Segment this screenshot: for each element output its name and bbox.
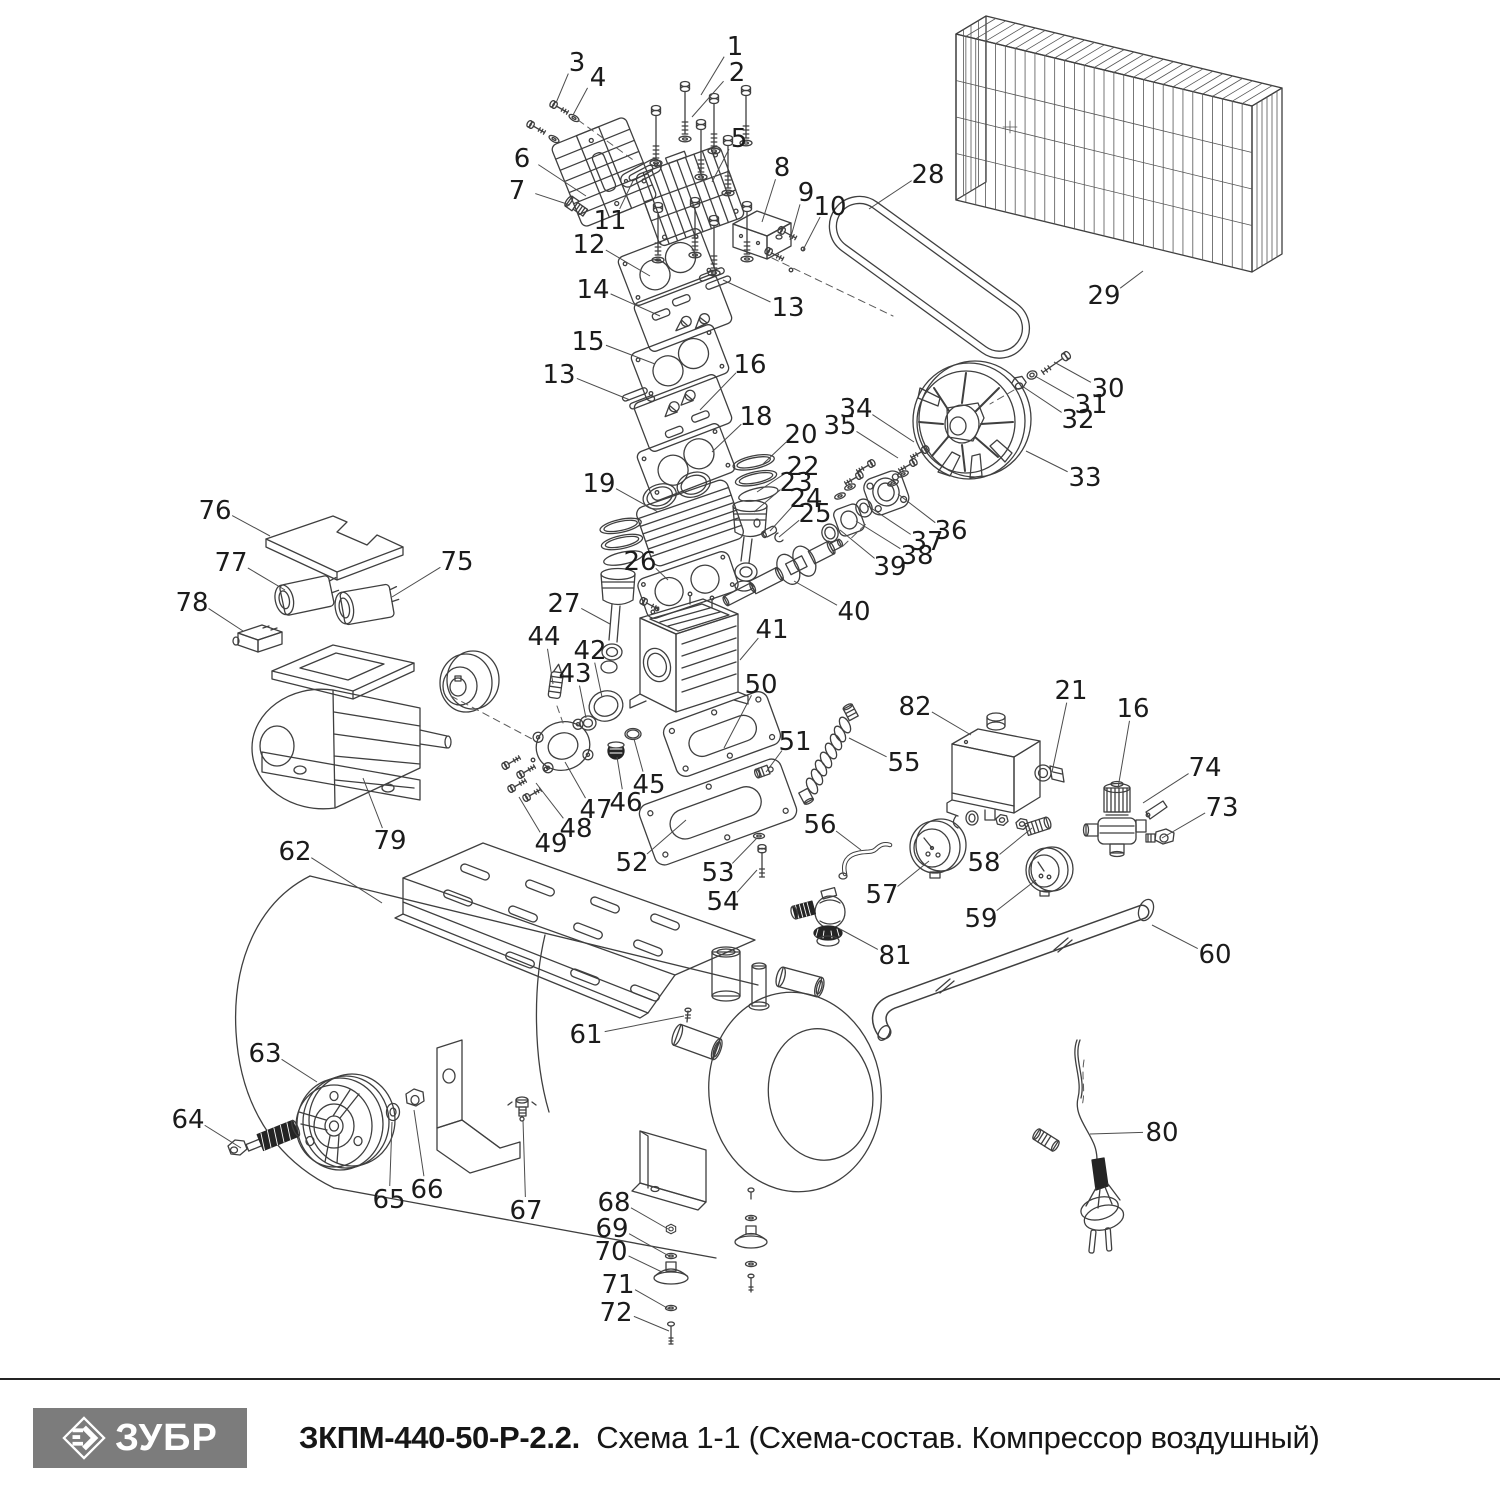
leader-line-37-35 xyxy=(868,506,911,534)
leader-line-78-76 xyxy=(209,608,243,631)
part-lever-74 xyxy=(1146,801,1167,819)
leader-line-67-65 xyxy=(523,1120,525,1197)
part-handle xyxy=(876,897,1157,1042)
part-drain-valve xyxy=(508,1097,536,1121)
guard-mesh-line xyxy=(1183,71,1213,89)
guard-mesh-line xyxy=(1232,83,1262,101)
leader-line-73-71 xyxy=(1162,813,1205,838)
leader-line-55-53 xyxy=(849,738,887,757)
part-label-8-7: 8 xyxy=(774,153,791,183)
part-label-35-33: 35 xyxy=(823,411,856,441)
part-fitting-73 xyxy=(1146,829,1174,844)
footer: ЗУБР ЗКПМ-440-50-Р-2.2. Схема 1-1 (Схема… xyxy=(0,1378,1500,1468)
part-label-77-75: 77 xyxy=(214,548,247,578)
leader-line-40-38 xyxy=(794,581,837,605)
part-label-43-41: 43 xyxy=(558,659,591,689)
part-label-32-30: 32 xyxy=(1061,405,1094,435)
part-motor-pulley xyxy=(440,651,499,712)
part-pipe-56 xyxy=(839,844,890,879)
leader-line-75-73 xyxy=(392,567,440,597)
exploded-diagram: 1234567891011121314151316181920222324252… xyxy=(0,0,1500,1378)
part-label-15-14: 15 xyxy=(571,327,604,357)
part-label-51-49: 51 xyxy=(778,727,811,757)
part-label-20-19: 20 xyxy=(784,420,817,450)
guard-mesh-line xyxy=(976,21,1006,39)
part-label-46-44: 46 xyxy=(609,788,642,818)
part-label-63-61: 63 xyxy=(248,1039,281,1069)
part-label-72-70: 72 xyxy=(599,1298,632,1328)
part-label-19-18: 19 xyxy=(582,469,615,499)
part-label-60-58: 60 xyxy=(1198,940,1231,970)
leader-line-56-54 xyxy=(836,831,861,850)
part-label-55-53: 55 xyxy=(887,748,920,778)
doc-subtitle: Схема 1-1 (Схема-состав. Компрессор возд… xyxy=(596,1420,1319,1455)
leader-line-80-78 xyxy=(1090,1132,1143,1134)
part-label-14-13: 14 xyxy=(576,275,609,305)
part-label-78-76: 78 xyxy=(175,588,208,618)
guard-mesh-line xyxy=(1114,54,1144,72)
doc-title: ЗКПМ-440-50-Р-2.2. Схема 1-1 (Схема-сост… xyxy=(299,1420,1320,1456)
guard-mesh-line xyxy=(1203,76,1233,94)
part-label-61-59: 61 xyxy=(569,1020,602,1050)
part-label-44-42: 44 xyxy=(527,622,560,652)
part-label-7-6: 7 xyxy=(509,176,526,206)
guard-mesh-line xyxy=(1084,47,1114,65)
doc-code: ЗКПМ-440-50-Р-2.2. xyxy=(299,1420,580,1455)
leader-line-43-41 xyxy=(580,686,586,718)
part-oil-plug xyxy=(608,742,624,759)
leader-line-25-23 xyxy=(779,520,799,537)
guard-mesh-line xyxy=(1193,74,1223,92)
part-plug-51 xyxy=(754,765,770,778)
leader-line-34-32 xyxy=(872,415,914,442)
part-pressure-switch xyxy=(947,713,1040,831)
leader-line-4-3 xyxy=(573,88,588,115)
leader-line-45-43 xyxy=(634,739,643,772)
guard-mesh-line xyxy=(1173,69,1203,87)
guard-mesh-line xyxy=(1045,38,1075,56)
part-label-10-9: 10 xyxy=(813,192,846,222)
part-label-79-77: 79 xyxy=(373,826,406,856)
leader-line-30-28 xyxy=(1054,362,1091,382)
part-valve-box-bolts xyxy=(764,226,805,272)
part-label-52-50: 52 xyxy=(615,848,648,878)
part-label-28-26: 28 xyxy=(911,160,944,190)
guard-mesh-line xyxy=(1055,40,1085,58)
leader-line-1-0 xyxy=(701,57,724,95)
part-head-bolts xyxy=(650,82,753,276)
brand-logo: ЗУБР xyxy=(33,1408,247,1468)
part-front-flange xyxy=(530,715,596,777)
leader-line-35-33 xyxy=(857,431,898,458)
leader-line-52-50 xyxy=(647,820,686,854)
guard-mesh-line xyxy=(1134,59,1164,77)
guard-mesh-line xyxy=(986,23,1016,41)
leader-line-36-34 xyxy=(898,494,935,523)
guard-mesh-line xyxy=(995,26,1025,44)
part-label-67-65: 67 xyxy=(509,1196,542,1226)
guard-mesh-line xyxy=(1035,35,1065,53)
leader-line-38-36 xyxy=(856,521,900,549)
part-check-valve xyxy=(790,888,845,946)
part-label-58-56: 58 xyxy=(967,848,1000,878)
part-cover-plate xyxy=(266,516,403,580)
leader-line-13-12 xyxy=(723,280,770,302)
part-label-29-27: 29 xyxy=(1087,281,1120,311)
part-label-18-17: 18 xyxy=(739,402,772,432)
part-gauge-small xyxy=(1026,847,1073,896)
part-label-74-72: 74 xyxy=(1188,753,1221,783)
guard-mesh-line xyxy=(1065,42,1095,60)
part-label-50-48: 50 xyxy=(744,670,777,700)
leader-line-79-77 xyxy=(363,778,382,828)
part-label-16-16: 16 xyxy=(733,350,766,380)
leader-line-60-58 xyxy=(1152,925,1198,949)
part-label-81-79: 81 xyxy=(878,941,911,971)
part-label-41-39: 41 xyxy=(755,615,788,645)
leader-line-21-82 xyxy=(1052,703,1067,772)
part-label-65-63: 65 xyxy=(372,1185,405,1215)
leader-line-29-27 xyxy=(1120,271,1143,288)
leader-line-63-61 xyxy=(282,1059,317,1082)
part-label-62-60: 62 xyxy=(278,837,311,867)
leader-line-72-70 xyxy=(634,1316,669,1331)
part-label-80-78: 80 xyxy=(1145,1118,1178,1148)
part-label-49-47: 49 xyxy=(534,829,567,859)
leader-line-59-57 xyxy=(997,880,1036,911)
part-pulley-hardware xyxy=(1010,350,1071,390)
part-label-13-12: 13 xyxy=(771,293,804,323)
leader-line-58-56 xyxy=(1000,828,1032,854)
leader-line-31-29 xyxy=(1035,376,1074,398)
guard-mesh-line xyxy=(1213,78,1243,96)
part-label-75-73: 75 xyxy=(440,547,473,577)
part-tank xyxy=(236,876,1061,1258)
part-oring xyxy=(625,729,641,740)
part-capacitor-left xyxy=(272,574,341,618)
part-motor xyxy=(252,645,451,809)
part-foot-set-left xyxy=(654,1224,688,1344)
leader-line-28-26 xyxy=(869,181,912,209)
guard-mesh-line xyxy=(1015,30,1045,48)
guard-mesh-line xyxy=(1222,81,1252,99)
leader-line-3-2 xyxy=(556,74,568,103)
leader-line-46-44 xyxy=(617,757,622,789)
part-axle-bolt xyxy=(228,1119,301,1155)
leader-line-64-62 xyxy=(205,1125,241,1148)
part-label-16-81: 16 xyxy=(1116,694,1149,724)
leader-line-65-63 xyxy=(390,1122,392,1186)
leader-line-13-15 xyxy=(577,378,630,400)
part-capacitor-right xyxy=(333,583,402,627)
part-label-66-64: 66 xyxy=(410,1175,443,1205)
leader-line-66-64 xyxy=(414,1110,424,1176)
leader-line-77-75 xyxy=(248,568,285,590)
leader-line-74-72 xyxy=(1143,774,1189,803)
part-label-26-24: 26 xyxy=(623,547,656,577)
part-label-64-62: 64 xyxy=(171,1105,204,1135)
guard-mesh-line xyxy=(1025,33,1055,51)
part-label-6-5: 6 xyxy=(514,144,531,174)
part-foot-set-right xyxy=(735,1188,767,1292)
part-label-9-8: 9 xyxy=(798,178,815,208)
part-axle-nut xyxy=(406,1089,424,1106)
guard-mesh-line xyxy=(1242,86,1272,104)
leader-line-16-16 xyxy=(700,373,736,410)
part-label-59-57: 59 xyxy=(964,904,997,934)
part-label-39-37: 39 xyxy=(873,552,906,582)
part-label-27-25: 27 xyxy=(547,589,580,619)
leader-line-49-47 xyxy=(519,797,540,832)
leader-line-68-66 xyxy=(631,1208,668,1229)
brand-name: ЗУБР xyxy=(115,1419,218,1457)
leader-line-53-51 xyxy=(732,838,757,863)
leader-line-16-81 xyxy=(1118,721,1129,788)
leader-line-33-31 xyxy=(1026,451,1068,472)
part-label-40-38: 40 xyxy=(837,597,870,627)
leader-line-9-8 xyxy=(790,204,800,240)
leader-line-19-18 xyxy=(616,489,658,512)
leader-line-69-67 xyxy=(629,1234,669,1256)
part-label-54-52: 54 xyxy=(706,887,739,917)
leader-line-82-80 xyxy=(932,712,971,735)
page: 1234567891011121314151316181920222324252… xyxy=(0,0,1500,1500)
part-bearing-bolts xyxy=(834,445,930,501)
brand-diamond-icon xyxy=(62,1416,106,1460)
leader-line-7-6 xyxy=(535,194,570,205)
part-gasket-stack xyxy=(617,227,737,502)
part-flywheel-pulley xyxy=(913,361,1031,479)
guard-mesh-line xyxy=(1124,57,1154,75)
part-label-70-68: 70 xyxy=(594,1237,627,1267)
guard-mesh-line xyxy=(1005,28,1035,46)
part-regulator xyxy=(1084,782,1147,857)
part-label-33-31: 33 xyxy=(1068,463,1101,493)
part-label-12-11: 12 xyxy=(572,230,605,260)
guard-mesh-line xyxy=(1104,52,1134,70)
part-label-21-82: 21 xyxy=(1054,676,1087,706)
leader-line-61-59 xyxy=(605,1016,684,1032)
guard-mesh-line xyxy=(1094,50,1124,68)
part-label-2-1: 2 xyxy=(729,58,746,88)
leader-line-76-74 xyxy=(232,516,270,536)
part-label-57-55: 57 xyxy=(865,880,898,910)
guard-mesh-line xyxy=(1143,62,1173,80)
part-crankshaft xyxy=(717,528,849,616)
part-plug xyxy=(563,195,588,218)
guard-mesh-line xyxy=(966,18,996,36)
guard-mesh-line xyxy=(1074,45,1104,63)
part-belt-guard xyxy=(956,16,1282,272)
part-label-71-69: 71 xyxy=(601,1270,634,1300)
part-label-4-3: 4 xyxy=(590,63,607,93)
leader-line-81-79 xyxy=(840,929,878,949)
part-fitting-58 xyxy=(1025,816,1052,835)
part-label-56-54: 56 xyxy=(803,810,836,840)
leader-line-62-60 xyxy=(311,858,382,903)
part-rear-leg xyxy=(632,1131,706,1210)
leader-line-57-55 xyxy=(898,861,929,887)
part-label-5-4: 5 xyxy=(731,124,748,154)
part-label-82-80: 82 xyxy=(898,692,931,722)
leader-line-48-46 xyxy=(536,783,563,818)
part-front-leg xyxy=(437,1040,520,1173)
part-label-3-2: 3 xyxy=(569,48,586,78)
part-crankcase xyxy=(630,592,748,712)
part-label-73-71: 73 xyxy=(1205,793,1238,823)
part-label-76-74: 76 xyxy=(198,496,231,526)
part-label-13-15: 13 xyxy=(542,360,575,390)
leader-line-54-52 xyxy=(737,870,757,892)
guard-mesh-line xyxy=(1153,64,1183,82)
guard-mesh-line xyxy=(1163,66,1193,84)
part-wheel xyxy=(296,1074,395,1170)
leader-line-71-69 xyxy=(635,1290,669,1309)
leader-line-27-25 xyxy=(581,608,610,624)
part-label-25-23: 25 xyxy=(798,499,831,529)
leader-line-20-19 xyxy=(762,442,786,465)
part-label-53-51: 53 xyxy=(701,858,734,888)
leader-line-10-9 xyxy=(803,217,820,250)
